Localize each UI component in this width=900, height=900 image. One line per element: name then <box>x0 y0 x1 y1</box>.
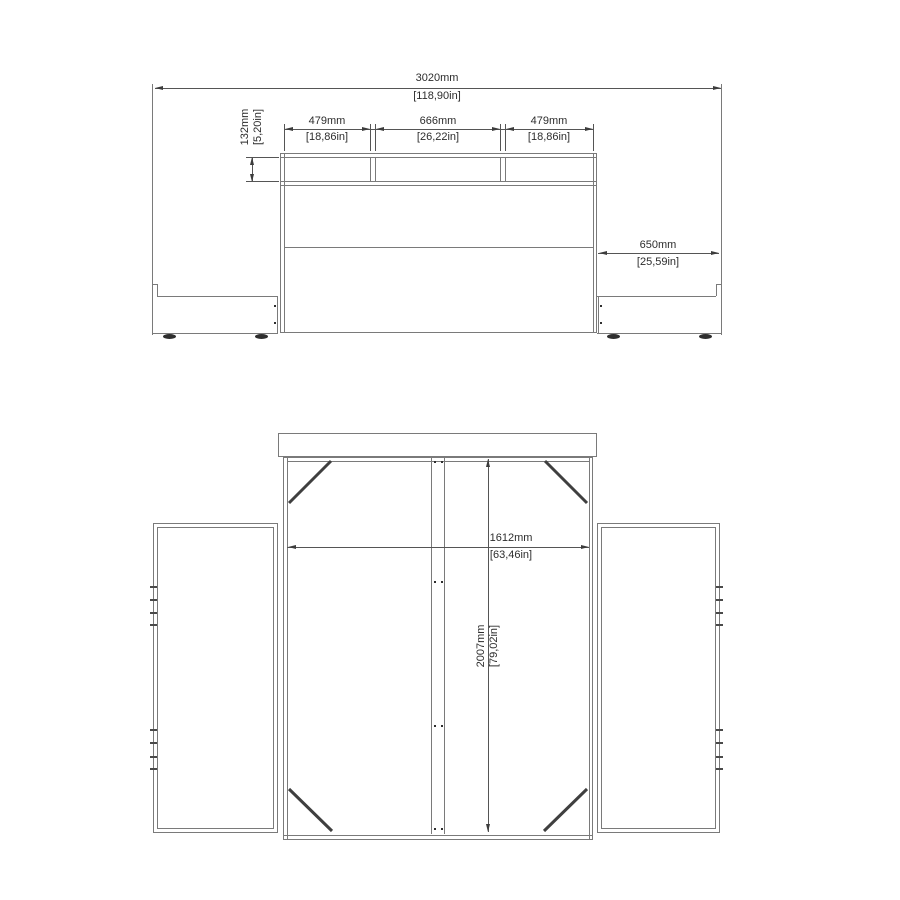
hinge-mark <box>150 729 157 731</box>
panel-outline <box>157 527 274 829</box>
panel-outline <box>601 527 716 829</box>
corner-brace <box>289 461 331 503</box>
dimension-line <box>287 547 589 548</box>
dim-inner-width-mm-label: 1612mm <box>490 532 533 544</box>
hinge-mark <box>716 624 723 626</box>
hinge-mark <box>150 612 157 614</box>
hinge-mark <box>150 586 157 588</box>
dimension-arrow <box>288 545 296 549</box>
dimension-arrow <box>486 824 490 832</box>
dim-length-mm-label: 2007mm <box>475 625 487 668</box>
dimension-arrow <box>486 459 490 467</box>
dimension-arrow <box>581 545 589 549</box>
hinge-mark <box>150 624 157 626</box>
hinge-mark <box>716 756 723 758</box>
hinge-mark <box>150 756 157 758</box>
corner-brace-lines <box>0 0 900 900</box>
corner-brace <box>544 789 587 831</box>
dim-length-label: 2007mm [79,02in] <box>475 625 501 668</box>
hinge-mark <box>150 599 157 601</box>
corner-brace <box>545 461 587 503</box>
technical-drawing-sheet: 3020mm [118,90in] 479mm [18,86in] 666mm … <box>0 0 900 900</box>
corner-brace <box>289 789 332 831</box>
hinge-mark <box>150 768 157 770</box>
hinge-mark <box>716 599 723 601</box>
hinge-mark <box>716 586 723 588</box>
hinge-mark <box>716 768 723 770</box>
hinge-mark <box>716 729 723 731</box>
dim-inner-width-in-label: [63,46in] <box>490 549 532 561</box>
hinge-mark <box>150 742 157 744</box>
hinge-mark <box>716 612 723 614</box>
hinge-mark <box>716 742 723 744</box>
dim-length-in-label: [79,02in] <box>488 625 500 667</box>
